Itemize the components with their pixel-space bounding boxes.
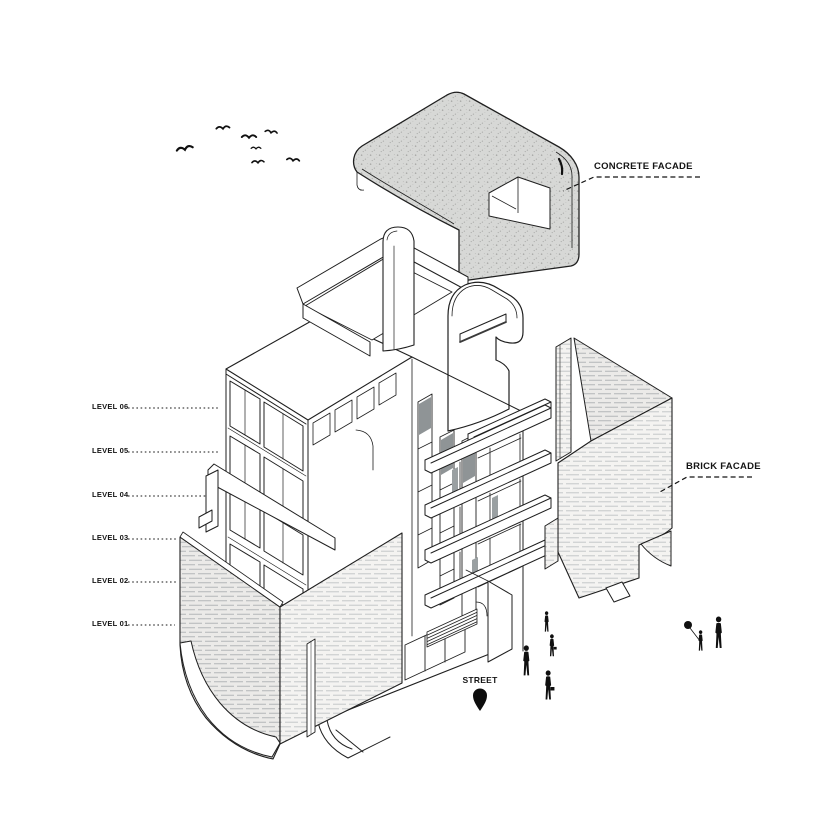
bird-icon (242, 135, 256, 137)
axonometric-drawing (0, 0, 837, 837)
bird-icon (265, 130, 277, 134)
roof-pylon (383, 227, 414, 351)
pedestrians (523, 611, 556, 699)
entry-apron-curves (318, 720, 390, 758)
balloon-string (690, 628, 700, 641)
brick-facade-label: BRICK FACADE (686, 461, 761, 472)
balloon-icon (684, 621, 692, 629)
level-01-label: LEVEL 01 (92, 619, 128, 628)
pedestrian (550, 634, 557, 656)
bird-icon (216, 126, 229, 129)
base-right-wall (488, 581, 512, 662)
family-group (684, 616, 722, 650)
bird-icon (252, 160, 264, 163)
level-04-label: LEVEL 04 (92, 490, 128, 499)
street-pin-icon (473, 689, 487, 712)
birds-flock (176, 126, 299, 163)
diagram-canvas: CONCRETE FACADE BRICK FACADE STREET LEVE… (0, 0, 837, 837)
pedestrian (545, 670, 554, 699)
bird-icon (176, 145, 192, 151)
level-03-label: LEVEL 03 (92, 533, 128, 542)
pedestrian (545, 611, 549, 631)
wrap-downpipe (307, 639, 315, 737)
brick-facade-panel (545, 338, 672, 602)
bird-icon (287, 158, 300, 161)
panel-left-wing (545, 518, 558, 569)
level-05-label: LEVEL 05 (92, 446, 128, 455)
panel-fin (556, 338, 571, 461)
concrete-facade-label: CONCRETE FACADE (594, 161, 693, 172)
level-02-label: LEVEL 02 (92, 576, 128, 585)
panel-main (558, 398, 672, 598)
level-06-label: LEVEL 06 (92, 402, 128, 411)
concrete-facade-leader (563, 177, 700, 191)
street-label: STREET (452, 675, 508, 685)
pedestrian (523, 645, 529, 675)
bird-icon (251, 147, 261, 149)
family-adult (715, 616, 721, 648)
